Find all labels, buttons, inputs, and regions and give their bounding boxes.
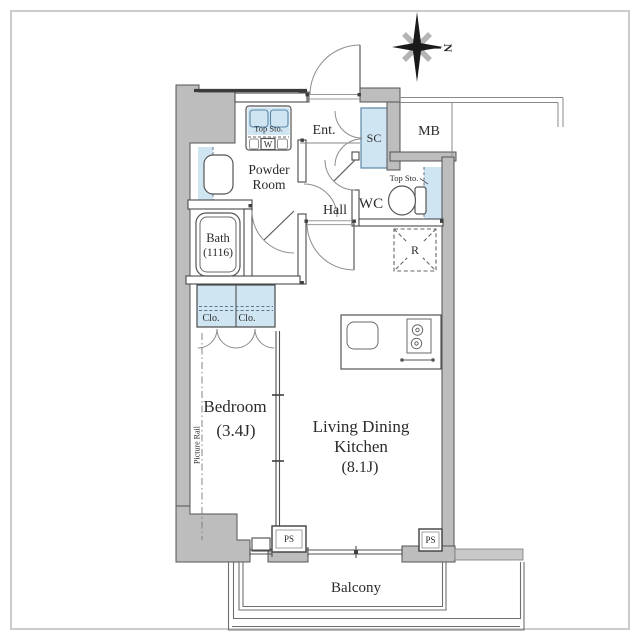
label-refrigerator: R <box>411 243 419 257</box>
kitchen-counter <box>341 315 441 369</box>
right-wall <box>442 157 454 548</box>
wc-storage-strip <box>424 167 442 221</box>
node-4 <box>353 220 356 223</box>
label-closet-left: Clo. <box>203 313 220 324</box>
label-wc-storage: Top Sto. <box>390 173 419 183</box>
front-door-swing <box>310 45 360 95</box>
closet-right-door-2 <box>255 329 274 348</box>
closet-left-door-1 <box>198 329 217 348</box>
wc-west-wall-upper <box>352 152 359 160</box>
node-8 <box>249 204 252 207</box>
label-washer-storage: Top Sto. <box>254 124 283 134</box>
toilet-tank <box>415 187 426 214</box>
sc-door-swing-upper <box>335 111 362 138</box>
label-shoe-closet: SC <box>367 131 382 145</box>
label-closet-right: Clo. <box>239 313 256 324</box>
label-bath-size: (1116) <box>203 247 233 259</box>
powder-bath-wall <box>188 200 252 209</box>
entry-right-wall <box>360 88 400 102</box>
label-bath: Bath <box>206 231 230 245</box>
label-bedroom: Bedroom <box>203 397 266 416</box>
compass-north-label: N <box>441 44 455 53</box>
compass-rose: N <box>392 12 455 82</box>
neighbor-wall-strip <box>455 549 523 560</box>
hall-ldk-door-swing <box>307 223 354 270</box>
label-ldk-2: Kitchen <box>334 437 388 456</box>
label-pipe-space-right: PS <box>425 535 435 545</box>
powder-east-wall-upper <box>298 140 306 182</box>
compass-needle-horizontal <box>392 43 443 52</box>
node-1 <box>306 93 309 96</box>
closet-top-wall <box>186 276 300 284</box>
label-hall: Hall <box>323 203 347 218</box>
closet-left-door-2 <box>217 329 236 348</box>
bath-east-wall <box>244 209 252 277</box>
label-pipe-space-left: PS <box>284 534 294 544</box>
powder-east-wall-lower <box>298 214 306 284</box>
label-powder-room-1: Powder <box>248 162 290 177</box>
floorplan-drawing: N Ent. SC MB Powder Room WC Top Sto. Hal… <box>0 0 640 640</box>
node-6 <box>301 139 304 142</box>
balcony-boundary-outer <box>229 562 525 630</box>
bath-area-door-leaf <box>264 211 294 240</box>
label-washer: W <box>264 140 273 150</box>
bedroom-ldk-partition <box>272 331 284 526</box>
closet-right-door-1 <box>236 329 255 348</box>
wash-basin <box>204 155 233 194</box>
label-powder-room-2: Room <box>252 177 286 192</box>
node-2 <box>358 93 361 96</box>
label-meter-box: MB <box>418 124 440 139</box>
label-wc: WC <box>359 196 383 212</box>
ldk-window-mullion-node <box>354 551 358 555</box>
label-bedroom-size: (3.4J) <box>216 421 255 440</box>
wc-door-leaf <box>334 160 355 181</box>
handle-dot-right <box>431 358 435 362</box>
page-frame <box>11 11 629 629</box>
node-7 <box>301 281 304 284</box>
kitchen-top-wall <box>359 219 443 226</box>
powder-top-wall <box>235 93 307 102</box>
label-balcony: Balcony <box>331 580 381 596</box>
label-ldk-1: Living Dining <box>313 417 410 436</box>
handle-dot-left <box>400 358 404 362</box>
floorplan-page: N Ent. SC MB Powder Room WC Top Sto. Hal… <box>0 0 640 640</box>
node-3 <box>305 220 308 223</box>
label-entrance: Ent. <box>313 123 336 138</box>
node-5 <box>440 220 443 223</box>
balcony-rails <box>229 562 525 630</box>
label-picture-rail: Picture Rail <box>193 425 202 464</box>
bottom-left-wall-block <box>176 506 250 562</box>
label-ldk-size: (8.1J) <box>342 459 379 476</box>
toilet-bowl <box>389 186 416 215</box>
window-return-box <box>252 538 270 551</box>
fixtures <box>196 106 441 369</box>
